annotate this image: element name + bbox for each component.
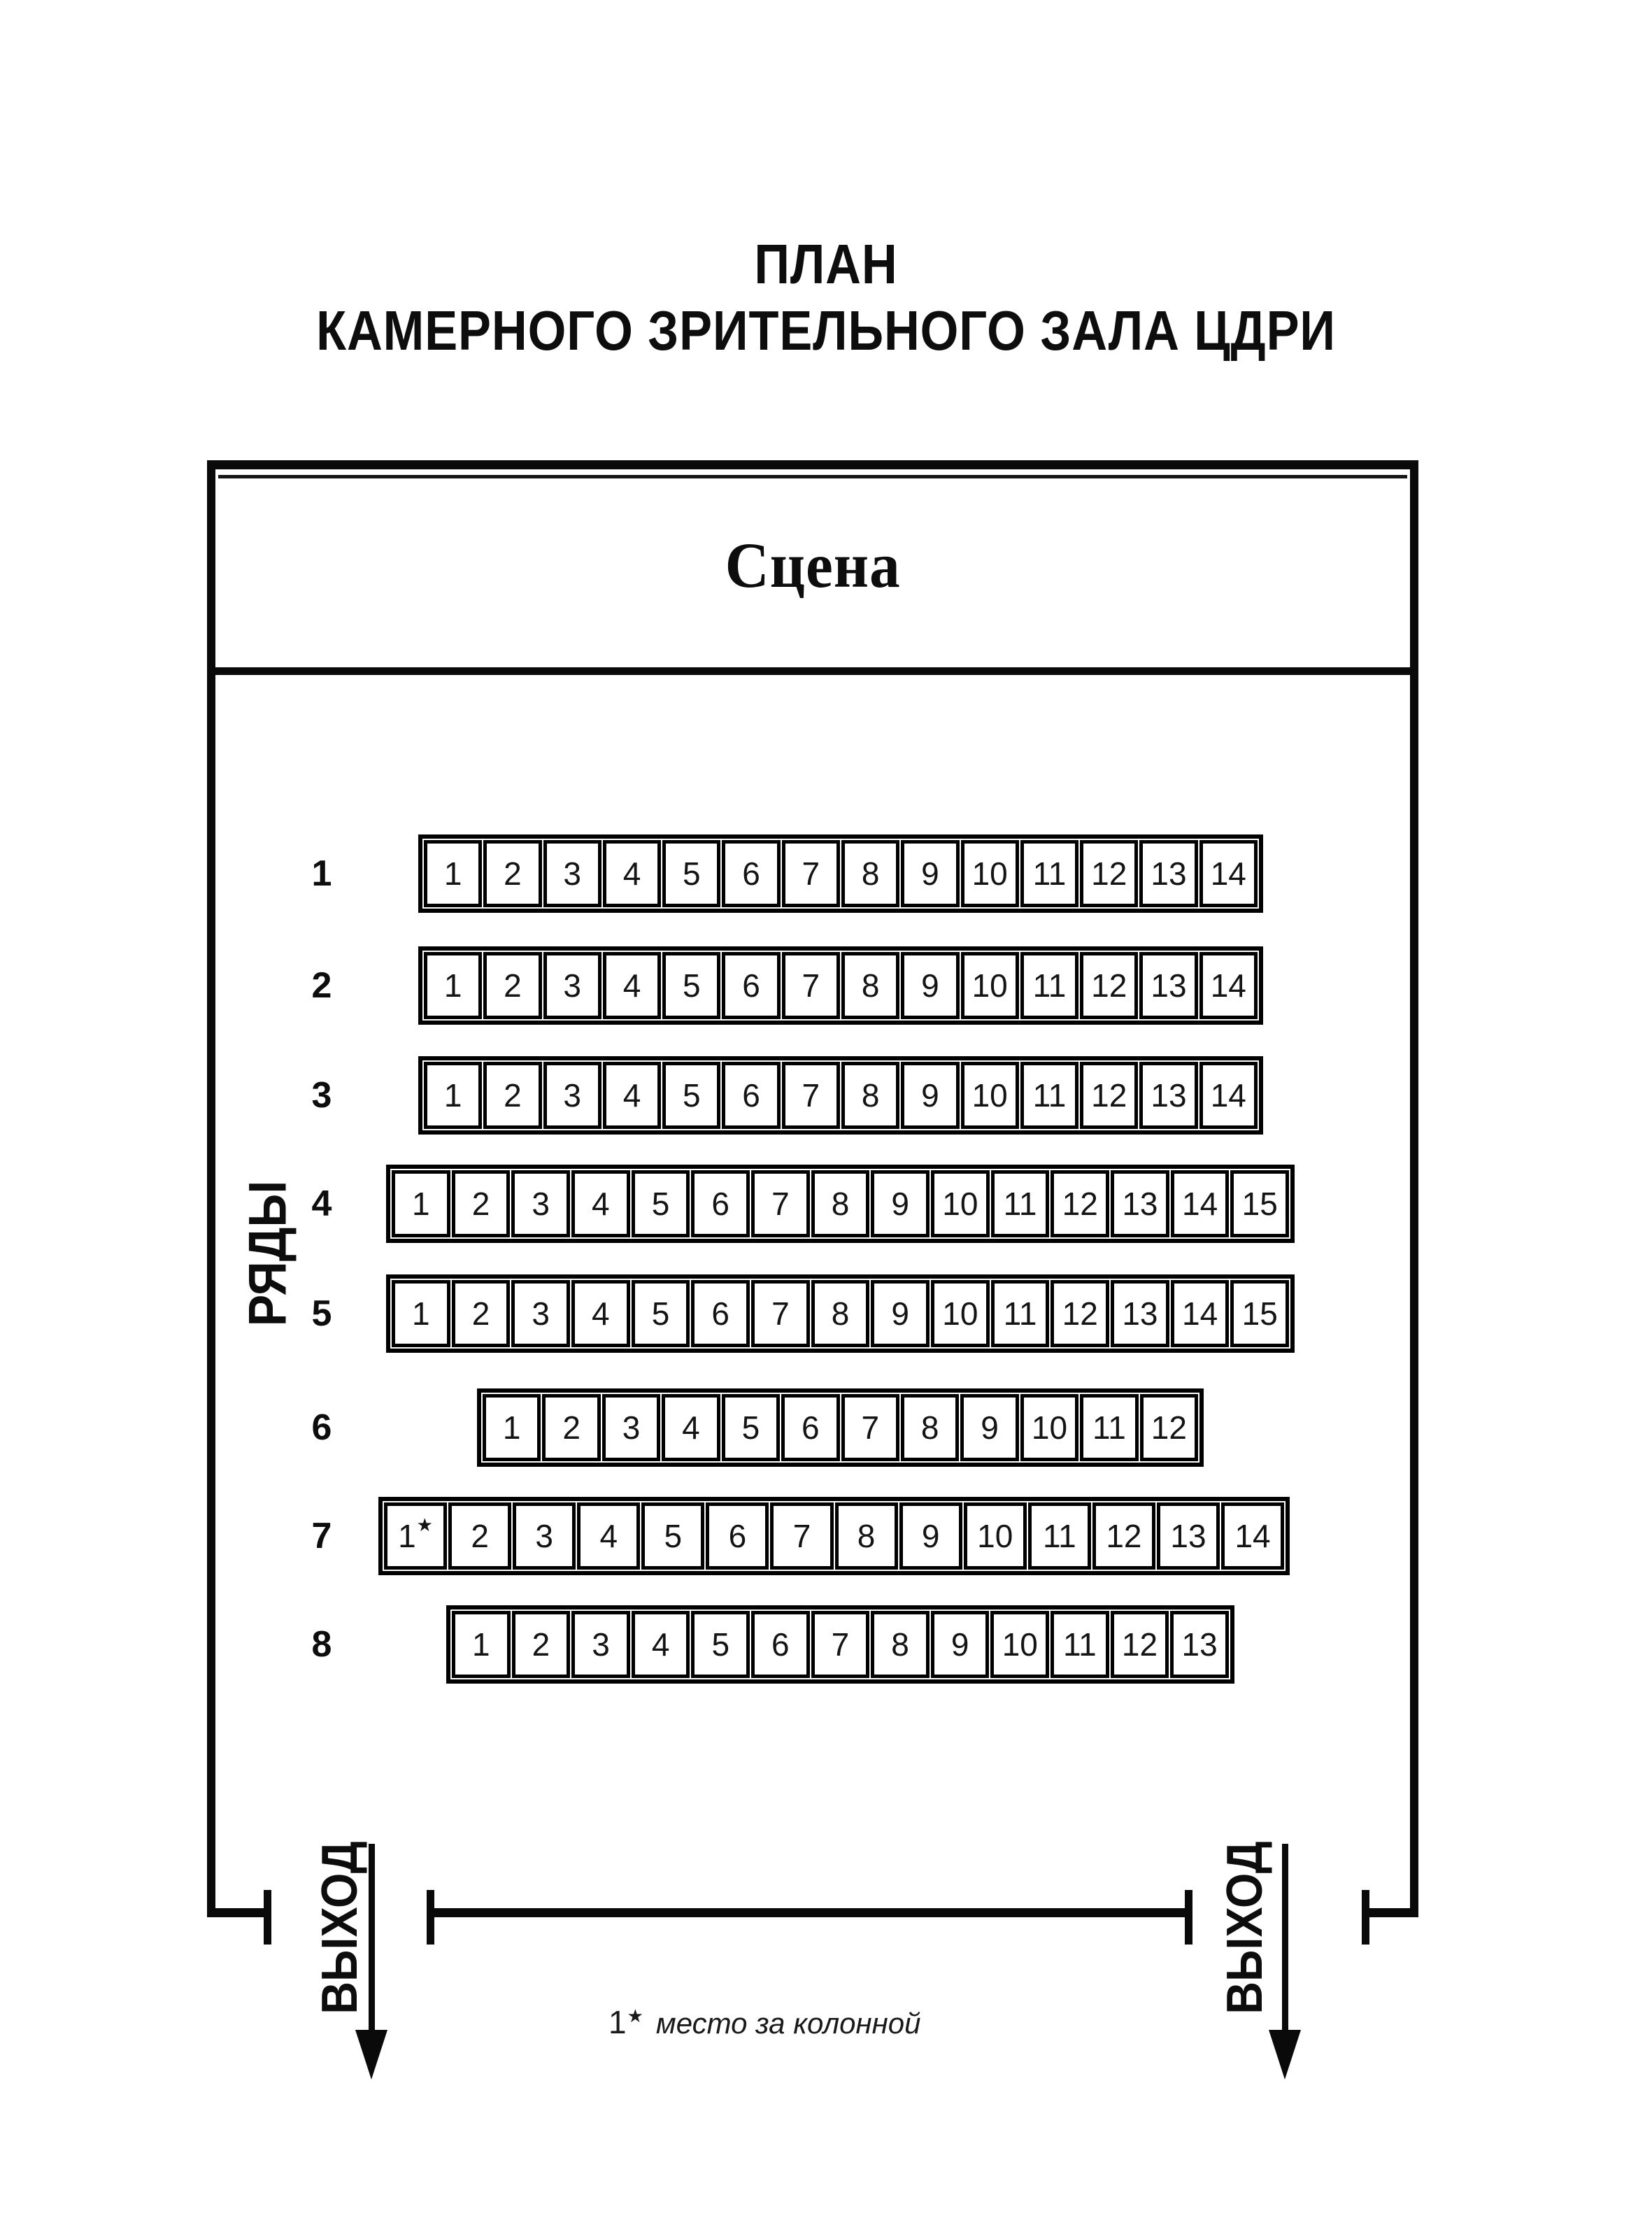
page-title: ПЛАН КАМЕРНОГО ЗРИТЕЛЬНОГО ЗАЛА ЦДРИ: [0, 231, 1652, 364]
seat: 5: [632, 1280, 690, 1347]
row-label: 5: [287, 1293, 357, 1335]
seat: 3: [513, 1502, 576, 1570]
seat: 4: [662, 1394, 720, 1461]
seat: 4: [571, 1170, 630, 1237]
seat: 10: [990, 1611, 1049, 1678]
wall-bottom-main: [434, 1908, 1192, 1917]
seat: 11: [1080, 1394, 1138, 1461]
footnote-marker: 1★: [608, 2004, 643, 2040]
seat: 12: [1111, 1611, 1169, 1678]
column-seat-star-icon: ★: [417, 1514, 433, 1536]
seat: 13: [1111, 1280, 1169, 1347]
seat: 1: [452, 1611, 511, 1678]
seat: 1★: [384, 1502, 447, 1570]
seat: 1: [483, 1394, 541, 1461]
seat: 14: [1199, 840, 1258, 907]
exit-left-arrowhead-icon: [355, 2030, 387, 2080]
seat: 14: [1171, 1280, 1230, 1347]
seat: 1: [424, 952, 482, 1019]
seat: 13: [1139, 952, 1197, 1019]
wall-stub-left: [207, 1908, 271, 1917]
seat: 6: [722, 1062, 780, 1129]
seat: 2: [542, 1394, 600, 1461]
seat: 11: [991, 1170, 1050, 1237]
seat: 7: [811, 1611, 870, 1678]
seat: 9: [901, 1062, 959, 1129]
seat: 7: [782, 840, 840, 907]
wall-cap-left-outer: [264, 1890, 271, 1945]
seat: 15: [1230, 1280, 1289, 1347]
seat: 2: [483, 1062, 541, 1129]
row-label: 2: [287, 965, 357, 1007]
seat: 8: [841, 1062, 899, 1129]
seat: 3: [571, 1611, 630, 1678]
seat: 11: [1020, 952, 1078, 1019]
seat: 6: [751, 1611, 810, 1678]
seat: 5: [722, 1394, 780, 1461]
seat: 11: [1028, 1502, 1091, 1570]
seat: 1: [392, 1170, 450, 1237]
seat: 6: [722, 840, 780, 907]
stage: Сцена: [215, 469, 1410, 675]
seat: 7: [782, 952, 840, 1019]
seat: 1: [424, 840, 482, 907]
seat: 7: [751, 1170, 810, 1237]
seat: 8: [871, 1611, 930, 1678]
seat: 5: [662, 1062, 720, 1129]
seat: 2: [452, 1280, 511, 1347]
seat-row: 123456789101112131415: [386, 1274, 1295, 1353]
seat: 10: [931, 1280, 990, 1347]
seat: 6: [706, 1502, 769, 1570]
seat: 3: [511, 1170, 570, 1237]
stage-label: Сцена: [725, 528, 900, 609]
seat: 5: [641, 1502, 704, 1570]
row-label: 8: [287, 1623, 357, 1665]
seat-row: 123456789101112: [477, 1388, 1204, 1467]
seat: 15: [1230, 1170, 1289, 1237]
seat: 10: [961, 952, 1019, 1019]
seat: 6: [691, 1170, 750, 1237]
seat: 9: [901, 840, 959, 907]
row-label: 7: [287, 1515, 357, 1557]
seat: 8: [901, 1394, 959, 1461]
seat: 12: [1140, 1394, 1198, 1461]
seat: 12: [1080, 1062, 1138, 1129]
seat-row: 1234567891011121314: [418, 946, 1263, 1025]
wall-stub-right: [1369, 1908, 1418, 1917]
seat: 8: [835, 1502, 898, 1570]
seat-row: 1★234567891011121314: [378, 1497, 1290, 1575]
seat: 3: [543, 840, 601, 907]
row-label: 1: [287, 853, 357, 895]
seat: 3: [602, 1394, 660, 1461]
seat: 1: [392, 1280, 450, 1347]
seat: 2: [483, 840, 541, 907]
seat: 8: [841, 952, 899, 1019]
seat: 9: [931, 1611, 990, 1678]
seat: 13: [1111, 1170, 1169, 1237]
seat: 1: [424, 1062, 482, 1129]
seat: 14: [1199, 952, 1258, 1019]
seat-row: 1234567891011121314: [418, 1056, 1263, 1135]
wall-cap-right-outer: [1362, 1890, 1369, 1945]
exit-left-label: ВЫХОД: [311, 1841, 369, 2014]
seat: 7: [782, 1062, 840, 1129]
seat-row: 123456789101112131415: [386, 1165, 1295, 1243]
seat: 9: [871, 1170, 930, 1237]
seat: 9: [960, 1394, 1018, 1461]
seat: 12: [1080, 840, 1138, 907]
exit-left-arrow-down-icon: [369, 1844, 375, 2034]
seat: 2: [512, 1611, 571, 1678]
seat: 5: [632, 1170, 690, 1237]
seat: 12: [1051, 1280, 1109, 1347]
seat: 14: [1199, 1062, 1258, 1129]
seat: 9: [871, 1280, 930, 1347]
seat: 11: [991, 1280, 1050, 1347]
seat: 11: [1020, 1062, 1078, 1129]
seat: 5: [691, 1611, 750, 1678]
seat: 5: [662, 840, 720, 907]
seat: 8: [811, 1170, 870, 1237]
seat: 11: [1051, 1611, 1109, 1678]
seat: 3: [543, 952, 601, 1019]
row-label: 4: [287, 1183, 357, 1225]
seat: 9: [901, 952, 959, 1019]
column-seat-star-icon: ★: [627, 2005, 643, 2026]
seat: 6: [691, 1280, 750, 1347]
page-title-line2: КАМЕРНОГО ЗРИТЕЛЬНОГО ЗАЛА ЦДРИ: [99, 297, 1553, 364]
seat: 4: [571, 1280, 630, 1347]
seat: 10: [961, 840, 1019, 907]
seat: 10: [1020, 1394, 1078, 1461]
seat: 14: [1221, 1502, 1284, 1570]
stage-inner-border: [218, 475, 1407, 478]
exit-right-label: ВЫХОД: [1216, 1841, 1274, 2014]
seat: 13: [1139, 1062, 1197, 1129]
seat: 12: [1092, 1502, 1155, 1570]
seat: 2: [452, 1170, 511, 1237]
seat-row: 1234567891011121314: [418, 834, 1263, 913]
page-title-line1: ПЛАН: [99, 231, 1553, 297]
wall-cap-left-inner: [427, 1890, 434, 1945]
seat: 14: [1171, 1170, 1230, 1237]
seat: 10: [964, 1502, 1027, 1570]
footnote: 1★место за колонной: [608, 2003, 920, 2041]
seat: 4: [603, 952, 661, 1019]
seat: 11: [1020, 840, 1078, 907]
seat: 6: [781, 1394, 839, 1461]
seat: 8: [841, 840, 899, 907]
seat: 4: [632, 1611, 690, 1678]
exit-right-arrowhead-icon: [1269, 2030, 1301, 2080]
seat: 13: [1170, 1611, 1229, 1678]
seat: 3: [511, 1280, 570, 1347]
row-label: 3: [287, 1074, 357, 1116]
seat: 13: [1139, 840, 1197, 907]
seat: 13: [1157, 1502, 1220, 1570]
exit-right-arrow-down-icon: [1282, 1844, 1288, 2034]
seat: 7: [770, 1502, 833, 1570]
seat: 3: [543, 1062, 601, 1129]
seat: 7: [841, 1394, 899, 1461]
seat: 9: [899, 1502, 962, 1570]
seat: 12: [1051, 1170, 1109, 1237]
seat: 8: [811, 1280, 870, 1347]
row-label: 6: [287, 1407, 357, 1449]
seat-row: 12345678910111213: [446, 1605, 1234, 1684]
seat: 4: [577, 1502, 640, 1570]
seat: 4: [603, 1062, 661, 1129]
seat: 2: [483, 952, 541, 1019]
seat: 10: [931, 1170, 990, 1237]
seat: 12: [1080, 952, 1138, 1019]
seat: 4: [603, 840, 661, 907]
seat: 6: [722, 952, 780, 1019]
seat: 7: [751, 1280, 810, 1347]
seat: 2: [448, 1502, 511, 1570]
seating-plan-page: ПЛАН КАМЕРНОГО ЗРИТЕЛЬНОГО ЗАЛА ЦДРИ Сце…: [0, 0, 1652, 2239]
seat: 10: [961, 1062, 1019, 1129]
seat: 5: [662, 952, 720, 1019]
footnote-text: место за колонной: [656, 2007, 921, 2040]
wall-cap-right-inner: [1185, 1890, 1192, 1945]
